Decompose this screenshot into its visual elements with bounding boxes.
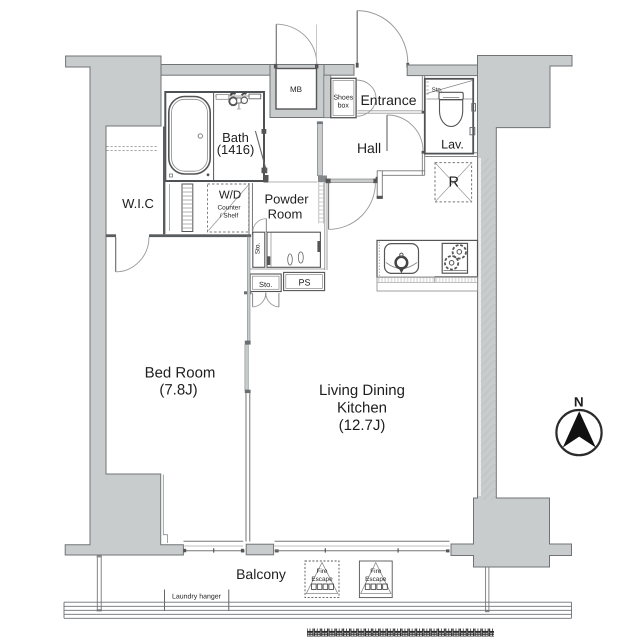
svg-text:Bed Room: Bed Room (145, 365, 216, 382)
svg-text:Living Dining: Living Dining (319, 382, 405, 399)
svg-text:/ Shelf: / Shelf (220, 213, 239, 220)
svg-text:Powder: Powder (264, 192, 309, 207)
svg-text:Fire: Fire (370, 568, 381, 575)
svg-text:Sto.: Sto. (255, 243, 262, 255)
svg-text:N: N (574, 395, 584, 410)
svg-text:Sto.: Sto. (259, 280, 272, 289)
svg-text:Shoes: Shoes (333, 94, 353, 102)
svg-text:Hall: Hall (357, 140, 381, 156)
svg-text:W.I.C: W.I.C (122, 196, 154, 211)
svg-text:Kitchen: Kitchen (337, 400, 387, 417)
svg-text:R: R (449, 175, 459, 191)
svg-text:Escape: Escape (365, 576, 387, 583)
svg-text:Balcony: Balcony (236, 566, 286, 582)
svg-text:box: box (338, 102, 350, 110)
svg-text:(1416): (1416) (217, 142, 255, 157)
svg-text:Escape: Escape (311, 576, 333, 583)
svg-text:Lav.: Lav. (441, 138, 464, 152)
svg-text:Entrance: Entrance (360, 92, 416, 108)
svg-text:Room: Room (268, 207, 303, 222)
svg-text:Laundry hanger: Laundry hanger (172, 593, 222, 601)
svg-text:(12.7J): (12.7J) (339, 417, 386, 434)
svg-text:PS: PS (298, 278, 310, 288)
svg-text:(7.8J): (7.8J) (159, 382, 197, 399)
svg-text:Counter: Counter (217, 205, 241, 212)
svg-text:Fire: Fire (316, 568, 327, 575)
svg-text:MB: MB (290, 85, 302, 94)
svg-text:W/D: W/D (219, 190, 241, 202)
